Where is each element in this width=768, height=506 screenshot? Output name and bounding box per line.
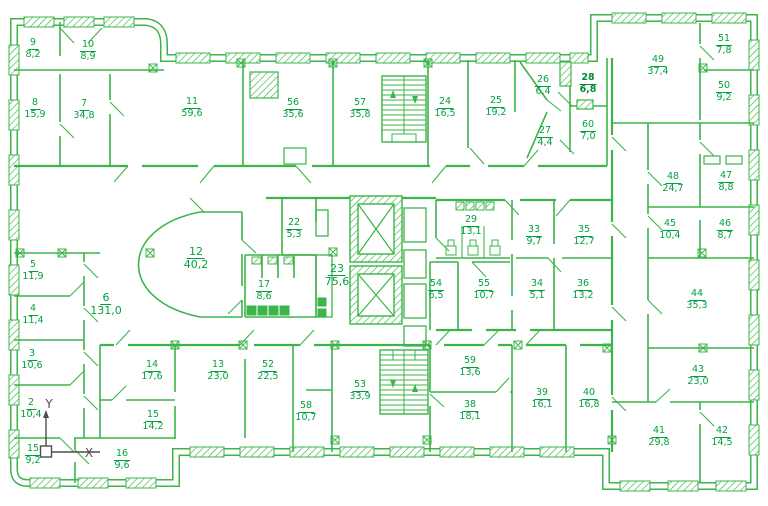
room-label-34[interactable]: 345,1: [529, 279, 545, 301]
room-label-3[interactable]: 310,6: [21, 349, 42, 371]
room-label-44[interactable]: 4435,3: [686, 289, 707, 311]
room-label-43[interactable]: 4323,0: [687, 365, 708, 387]
room-label-7[interactable]: 734,8: [73, 99, 94, 121]
room-label-24[interactable]: 2416,5: [434, 97, 455, 119]
ucs-icon: Y X: [41, 397, 101, 460]
room-label-58[interactable]: 5810,7: [295, 401, 316, 423]
room-label-22[interactable]: 225,3: [286, 218, 302, 240]
room-label-8[interactable]: 815,9: [24, 98, 45, 120]
room-label-45[interactable]: 4510,4: [659, 219, 680, 241]
room-label-33[interactable]: 339,7: [526, 225, 542, 247]
room-label-11[interactable]: 1159,6: [181, 97, 202, 119]
room-label-57[interactable]: 5735,8: [349, 98, 370, 120]
ucs-x-label: X: [85, 446, 93, 460]
elevator-core: [350, 196, 426, 346]
room-label-42[interactable]: 4214,5: [711, 426, 732, 448]
room-label-46[interactable]: 468,7: [717, 219, 733, 241]
room-label-35[interactable]: 3512,7: [573, 225, 594, 247]
room-label-15-a[interactable]: 159,2: [25, 444, 41, 466]
room-label-38[interactable]: 3818,1: [459, 400, 480, 422]
room-label-17[interactable]: 178,6: [256, 280, 272, 302]
room-label-52[interactable]: 5222,5: [257, 360, 278, 382]
room-label-25[interactable]: 2519,2: [485, 96, 506, 118]
room-label-54[interactable]: 546,5: [428, 279, 444, 301]
room-label-47[interactable]: 478,8: [718, 171, 734, 193]
room-label-28-selected[interactable]: 286,8: [579, 73, 596, 95]
room-label-23[interactable]: 2375,6: [325, 263, 350, 289]
room-label-55[interactable]: 5510,7: [473, 279, 494, 301]
room-label-40[interactable]: 4016,8: [578, 388, 599, 410]
room-label-14[interactable]: 1417,6: [141, 360, 162, 382]
room-label-16[interactable]: 169,6: [114, 449, 130, 471]
room-label-29[interactable]: 2913,1: [460, 215, 481, 237]
room-label-9[interactable]: 98,2: [25, 38, 40, 60]
ucs-y-label: Y: [44, 397, 53, 411]
room-label-10[interactable]: 108,9: [80, 40, 96, 62]
floor-plan-canvas[interactable]: Y X 98,2 108,9 815,9 734,8 1159,6 5635,6…: [0, 0, 768, 506]
room-label-51[interactable]: 517,8: [716, 34, 732, 56]
room-label-15-b[interactable]: 1514,2: [142, 410, 163, 432]
room-label-26[interactable]: 266,4: [535, 75, 551, 97]
room-label-6[interactable]: 6131,0: [90, 292, 122, 318]
staircase-lower: [380, 350, 428, 414]
room-label-2[interactable]: 210,4: [20, 398, 41, 420]
room-label-4[interactable]: 411,4: [22, 304, 43, 326]
room-label-5[interactable]: 511,9: [22, 260, 43, 282]
room-label-13[interactable]: 1323,0: [207, 360, 228, 382]
room-label-48[interactable]: 4824,7: [662, 172, 683, 194]
room-label-36[interactable]: 3613,2: [572, 279, 593, 301]
staircase-upper: [382, 76, 426, 142]
room-label-27[interactable]: 274,4: [537, 126, 553, 148]
room-label-39[interactable]: 3916,1: [531, 388, 552, 410]
room-label-53[interactable]: 5333,9: [349, 380, 370, 402]
room-label-49[interactable]: 4937,4: [647, 55, 668, 77]
room-label-59[interactable]: 5913,6: [459, 356, 480, 378]
room-label-60[interactable]: 607,0: [580, 120, 596, 142]
room-label-41[interactable]: 4129,8: [648, 426, 669, 448]
room-label-12[interactable]: 1240,2: [184, 246, 209, 272]
room-label-56[interactable]: 5635,6: [282, 98, 303, 120]
room-label-50[interactable]: 509,2: [716, 81, 732, 103]
